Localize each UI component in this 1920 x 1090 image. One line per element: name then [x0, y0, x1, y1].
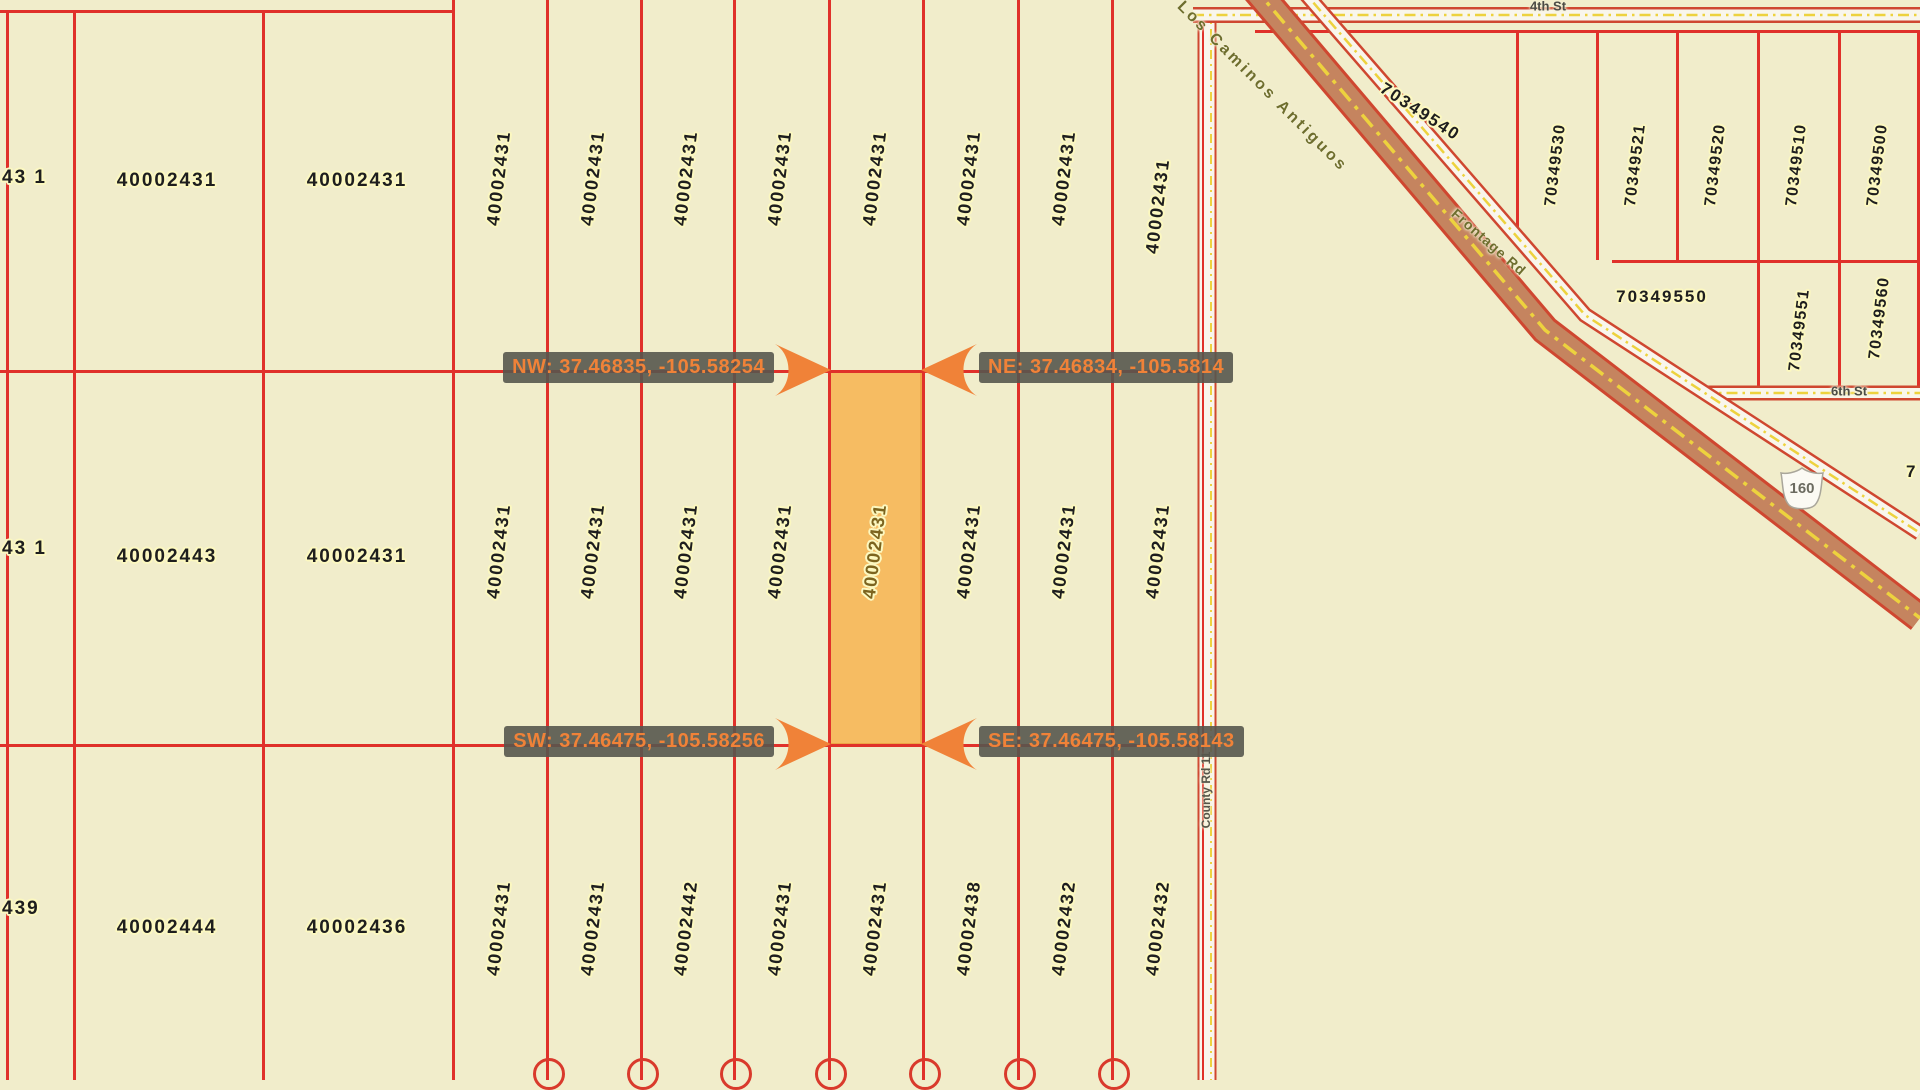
parcel-label: 40002442: [670, 879, 703, 977]
parcel-boundary-line: [1516, 30, 1519, 232]
parcel-label: 40002431: [483, 879, 516, 977]
corner-label-sw: SW: 37.46475, -105.58256: [504, 726, 774, 757]
parcel-label: 70349560: [1866, 276, 1894, 361]
parcel-label: 40002431: [670, 502, 703, 600]
street-label-county-rd: County Rd 11: [1199, 752, 1213, 829]
parcel-label: 70349530: [1542, 123, 1570, 208]
parcel-boundary-line: [452, 0, 455, 1080]
parcel-boundary-line: [546, 0, 549, 1080]
street-label-6th-st: 6th St: [1831, 384, 1867, 399]
highway-160-shield: 160: [1778, 466, 1826, 510]
corner-arrow-ne: [920, 342, 980, 398]
parcel-label: 70349520: [1702, 123, 1730, 208]
parcel-label: 40002431: [1142, 157, 1175, 255]
parcel-label: 40002431: [1048, 502, 1081, 600]
parcel-label-edge-2: 43 1: [2, 538, 47, 560]
parcel-label: 70349550: [1616, 287, 1708, 307]
parcel-label: 40002431: [1142, 502, 1175, 600]
parcel-label: 40002431: [764, 879, 797, 977]
parcel-boundary-line: [1017, 0, 1020, 1080]
parcel-boundary-line: [1111, 0, 1114, 1080]
parcel-label: 40002431: [764, 502, 797, 600]
county-road: [1203, 8, 1211, 1080]
parcel-boundary-line: [640, 0, 643, 1080]
parcel-arc: [720, 1058, 752, 1090]
parcel-label: 70349500: [1864, 123, 1892, 208]
street-label-los-caminos-antiguos: Los Caminos Antiguos: [1173, 0, 1351, 176]
parcel-boundary-line: [1757, 30, 1760, 390]
parcel-label: 40002431: [577, 879, 610, 977]
parcel-map[interactable]: NW: 37.46835, -105.58254 NE: 37.46834, -…: [0, 0, 1920, 1080]
parcel-label: 40002431: [953, 502, 986, 600]
svg-text:160: 160: [1789, 480, 1814, 497]
parcel-label: 40002431: [859, 129, 892, 227]
parcel-arc: [1098, 1058, 1130, 1090]
parcel-label: 40002431: [1048, 129, 1081, 227]
parcel-boundary-line: [262, 10, 265, 1080]
parcel-boundary-line: [828, 0, 831, 1080]
parcel-label: 40002431: [483, 502, 516, 600]
parcel-label: 40002431: [764, 129, 797, 227]
parcel-boundary-line: [922, 0, 925, 1080]
parcel-label: 40002443: [117, 546, 218, 568]
parcel-map-canvas[interactable]: { "map_labels": { "corner": { "nw": "NW:…: [0, 0, 1920, 1080]
parcel-label: 70349521: [1622, 123, 1650, 208]
street-label-4th-st: 4th St: [1530, 0, 1566, 14]
parcel-arc: [627, 1058, 659, 1090]
parcel-label: 40002431: [117, 170, 218, 192]
parcel-arc: [815, 1058, 847, 1090]
parcel-label: 40002431: [483, 129, 516, 227]
corner-arrow-nw: [772, 342, 832, 398]
parcel-boundary-line: [1596, 30, 1599, 260]
parcel-boundary-line: [0, 10, 452, 13]
parcel-label: 40002431: [953, 129, 986, 227]
parcel-label-edge-right: 7: [1906, 462, 1915, 482]
parcel-label: 40002432: [1142, 879, 1175, 977]
parcel-label: 40002431: [577, 502, 610, 600]
highway-160-road: [1252, 0, 1920, 618]
parcel-label: 40002432: [1048, 879, 1081, 977]
parcel-label: 40002431: [859, 879, 892, 977]
parcel-boundary-line: [1676, 30, 1679, 260]
parcel-arc: [909, 1058, 941, 1090]
parcel-arc: [533, 1058, 565, 1090]
parcel-arc: [1004, 1058, 1036, 1090]
corner-arrow-se: [920, 716, 980, 772]
corner-arrow-sw: [772, 716, 832, 772]
parcel-boundary-line: [733, 0, 736, 1080]
parcel-label: 70349510: [1783, 123, 1811, 208]
parcel-label: 40002431: [577, 129, 610, 227]
parcel-label-triangle: 70349540: [1376, 79, 1464, 146]
corner-label-se: SE: 37.46475, -105.58143: [979, 726, 1244, 757]
corner-label-nw: NW: 37.46835, -105.58254: [503, 352, 774, 383]
parcel-label: 70349551: [1786, 288, 1814, 373]
parcel-boundary-line: [73, 10, 76, 1080]
parcel-label: 40002431: [307, 546, 408, 568]
parcel-boundary-line: [1612, 260, 1920, 263]
corner-label-ne: NE: 37.46834, -105.5814: [979, 352, 1233, 383]
parcel-label: 40002438: [953, 879, 986, 977]
parcel-label-edge-1: 43 1: [2, 167, 47, 189]
frontage-road: [1298, 0, 1920, 533]
parcel-label: 40002436: [307, 917, 408, 939]
parcel-boundary-line: [1255, 30, 1920, 33]
parcel-label: 40002431: [670, 129, 703, 227]
parcel-boundary-line: [1838, 30, 1841, 390]
parcel-label: 40002444: [117, 917, 218, 939]
parcel-label-edge-3: 439: [2, 898, 40, 920]
parcel-label: 40002431: [307, 170, 408, 192]
